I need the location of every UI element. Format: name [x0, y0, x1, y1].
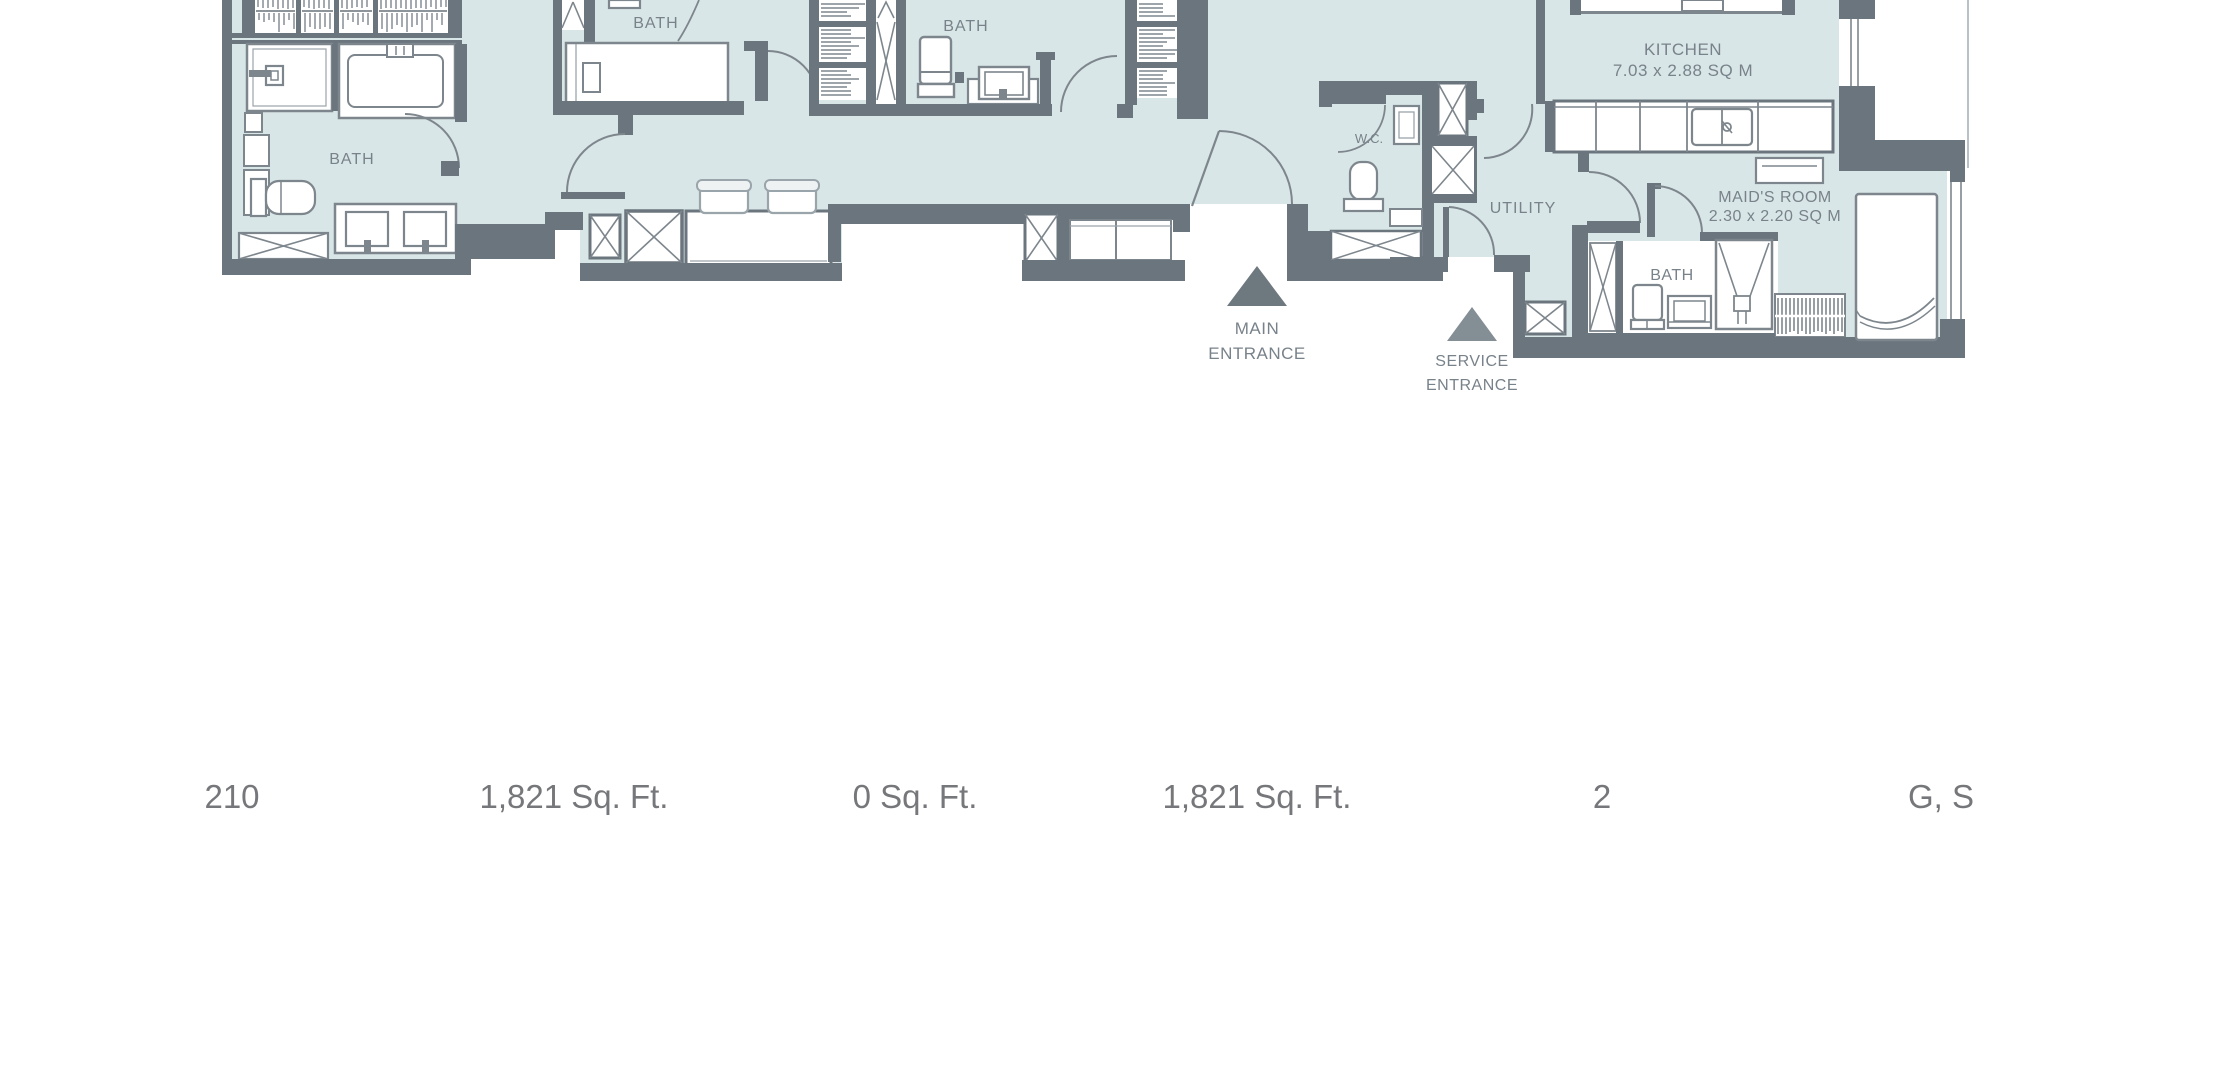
svg-text:G, S: G, S: [1908, 778, 1974, 815]
svg-text:1,821 Sq. Ft.: 1,821 Sq. Ft.: [1163, 778, 1352, 815]
svg-text:2.30 x 2.20 SQ M: 2.30 x 2.20 SQ M: [1709, 208, 1842, 225]
svg-text:BATH: BATH: [943, 18, 988, 35]
svg-text:KITCHEN: KITCHEN: [1644, 40, 1722, 59]
svg-text:MAID'S ROOM: MAID'S ROOM: [1718, 189, 1831, 206]
svg-text:MAIN: MAIN: [1235, 319, 1280, 338]
svg-text:BATH: BATH: [633, 15, 678, 32]
svg-text:SERVICE: SERVICE: [1435, 353, 1508, 370]
svg-text:2: 2: [1593, 778, 1611, 815]
svg-text:0 Sq. Ft.: 0 Sq. Ft.: [853, 778, 978, 815]
svg-text:UTILITY: UTILITY: [1490, 200, 1557, 217]
svg-text:1,821 Sq. Ft.: 1,821 Sq. Ft.: [480, 778, 669, 815]
svg-text:W.C.: W.C.: [1355, 131, 1383, 146]
svg-text:BATH: BATH: [1650, 267, 1693, 284]
svg-text:BATH: BATH: [329, 151, 374, 168]
svg-text:210: 210: [204, 778, 259, 815]
svg-text:7.03 x 2.88 SQ M: 7.03 x 2.88 SQ M: [1613, 61, 1753, 80]
svg-text:ENTRANCE: ENTRANCE: [1208, 344, 1306, 363]
svg-text:ENTRANCE: ENTRANCE: [1426, 377, 1518, 394]
